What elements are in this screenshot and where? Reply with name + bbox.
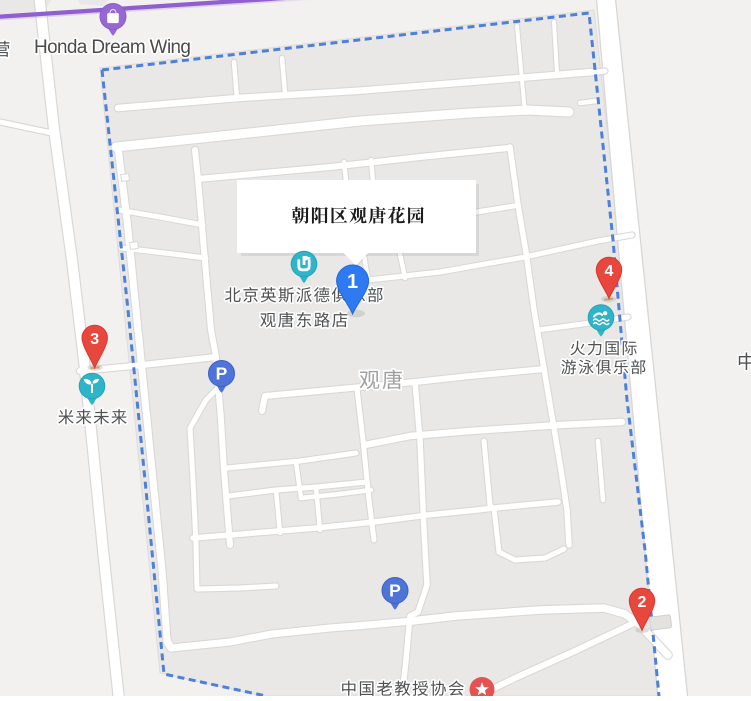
svg-text:Honda Dream Wing: Honda Dream Wing [34, 37, 191, 58]
svg-text:3: 3 [90, 331, 99, 348]
svg-text:P: P [389, 581, 401, 601]
svg-text:4: 4 [605, 263, 614, 280]
svg-text:P: P [216, 364, 228, 384]
svg-text:1: 1 [347, 271, 358, 293]
svg-text:2: 2 [638, 594, 647, 611]
